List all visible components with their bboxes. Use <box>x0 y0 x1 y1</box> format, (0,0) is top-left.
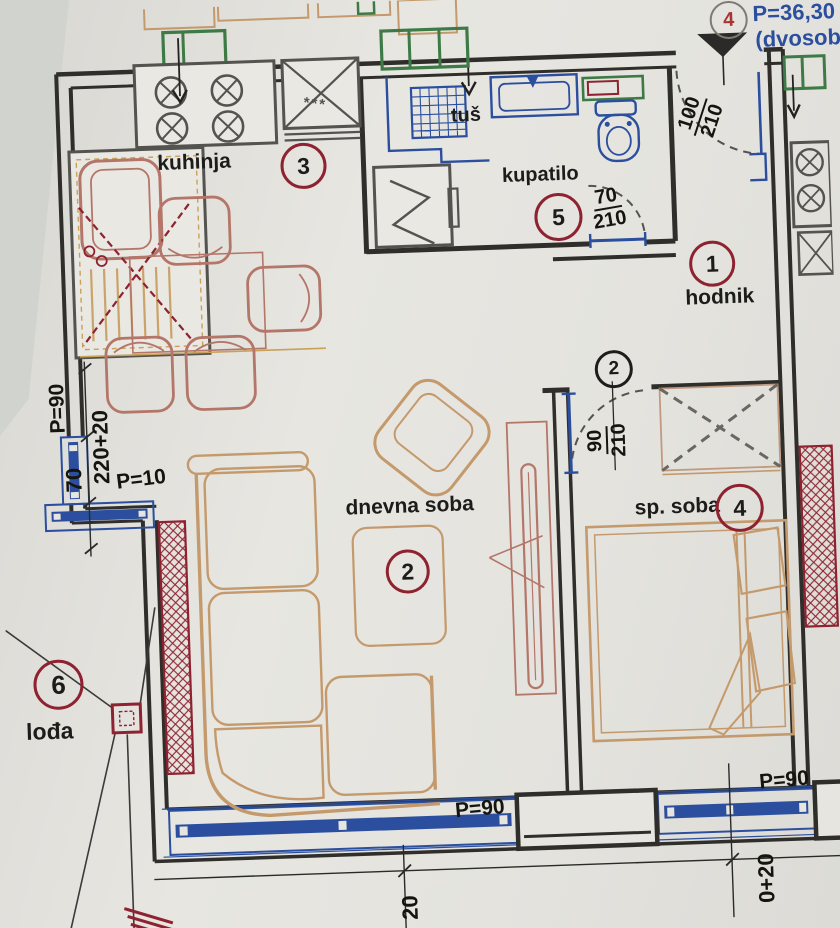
double-bed <box>586 520 796 741</box>
unit-area-label: P=36,30 <box>752 0 835 26</box>
chair <box>247 265 321 331</box>
bottom-dimension-right: 0+20 <box>753 850 781 907</box>
floor-plan-photo: 4 P=36,30 (dvosob kuhinja 3 tuš kupatilo… <box>0 0 840 928</box>
radiator <box>800 446 838 627</box>
room-label-lodja: lođa <box>26 718 74 745</box>
room-label-sp-soba: sp. soba <box>634 494 720 520</box>
living-room-furniture <box>154 368 560 819</box>
tv-stand <box>485 422 556 696</box>
pillow <box>733 527 785 594</box>
bottom-dimension-left: 20 <box>397 887 424 928</box>
adjacent-unit-right <box>787 74 834 275</box>
freezer-stars: *** <box>303 94 328 113</box>
kitchen-sink-counter <box>69 147 210 358</box>
toilet-shelf <box>583 76 644 100</box>
room-label-kuhinja: kuhinja <box>157 149 231 175</box>
washing-machine <box>374 165 460 248</box>
room-label-hodnik: hodnik <box>685 284 755 309</box>
toilet <box>595 100 639 161</box>
armchair <box>367 372 497 503</box>
left-segment-dimension: 220+20 <box>87 407 116 488</box>
floor-plan: 4 P=36,30 (dvosob kuhinja 3 tuš kupatilo… <box>0 0 840 928</box>
column <box>112 704 141 733</box>
entry-marker-line <box>723 55 724 85</box>
room-label-kupatilo: kupatilo <box>502 162 579 187</box>
railing <box>124 907 179 928</box>
bottom-parapet-left: P=90 <box>454 795 506 823</box>
bedroom-door-dimension: 90 210 <box>583 423 630 458</box>
window-bottom-bedroom <box>658 788 815 833</box>
blanket-fold <box>706 634 761 735</box>
left-window-width-dimension: 70 <box>61 462 88 499</box>
wardrobe <box>660 384 781 474</box>
stove <box>134 61 277 148</box>
left-parapet-dimension: P=90 <box>45 378 71 439</box>
washbasin <box>491 74 578 117</box>
shower-label: tuš <box>450 104 481 127</box>
unit-type-label: (dvosob <box>755 25 840 52</box>
bottom-parapet-right: P=90 <box>758 766 810 794</box>
room-label-dnevna-soba: dnevna soba <box>345 492 474 520</box>
